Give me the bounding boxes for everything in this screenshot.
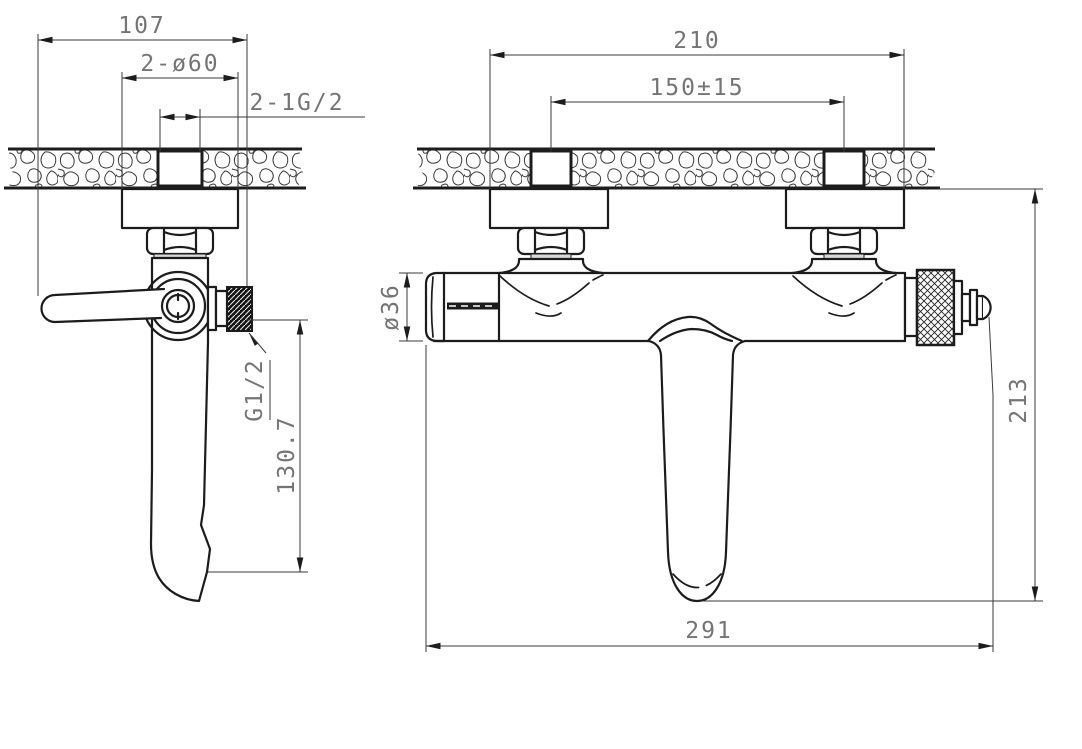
outlet-step-2 [216,291,227,326]
hex-nut-left [518,228,584,254]
hex-nut-right [811,228,877,254]
dimension-130-7: 130.7 [208,320,308,572]
dimension-2-1g2: 2-1G/2 [160,90,365,152]
right-end-assembly [905,270,991,345]
spout-outline [649,341,745,601]
embedded-pipe-socket-right [824,151,864,186]
escutcheon-right [786,189,904,228]
fillet-arcs-right [793,275,896,316]
inlet-bell-left [499,259,603,273]
end-neck [962,294,970,321]
dim-291-label: 291 [685,618,733,644]
dim-107-label: 107 [118,13,166,39]
body-left-cap-arc [432,277,434,337]
mixer-body [426,273,905,341]
wall-section-side [4,149,306,188]
leader-g12: G1/2 [242,333,270,422]
collar [905,278,917,336]
outlet-knurled-connector [227,287,252,331]
embedded-pipe-socket-left [531,151,571,186]
dim-150-15-label: 150±15 [649,75,744,101]
hex-nut-side [147,228,213,254]
dimension-d36: ø36 [378,273,423,341]
escutcheon-left [490,189,608,228]
dimension-150-15: 150±15 [551,75,844,152]
dim-130-7-label: 130.7 [274,415,300,494]
spout-front [648,317,745,601]
end-plate [954,281,962,334]
embedded-pipe-socket [158,151,202,186]
front-view [413,149,991,601]
dim-213-label: 213 [1006,376,1032,424]
aerator-dome [983,296,991,319]
escutcheon-side [122,189,238,228]
end-tip-block [977,296,983,319]
knurled-cap [917,270,954,345]
label-g12: G1/2 [242,358,268,421]
faucet-dimension-drawing: 107 2-ø60 2-1G/2 G1/2 [0,0,1082,749]
wall-hatch [7,149,303,188]
inlet-bell-right [792,259,896,273]
dim-2d60-label: 2-ø60 [140,51,219,77]
dim-210-label: 210 [673,28,721,54]
dim-d36-label: ø36 [378,283,404,331]
body-left-cap [426,273,444,341]
outlet-step-1 [208,287,216,330]
wall-section-front [413,149,940,188]
dim-2-1g2-label: 2-1G/2 [249,90,344,116]
fillet-arcs-left [500,275,603,316]
technical-drawing-canvas: 107 2-ø60 2-1G/2 G1/2 [0,0,1082,749]
